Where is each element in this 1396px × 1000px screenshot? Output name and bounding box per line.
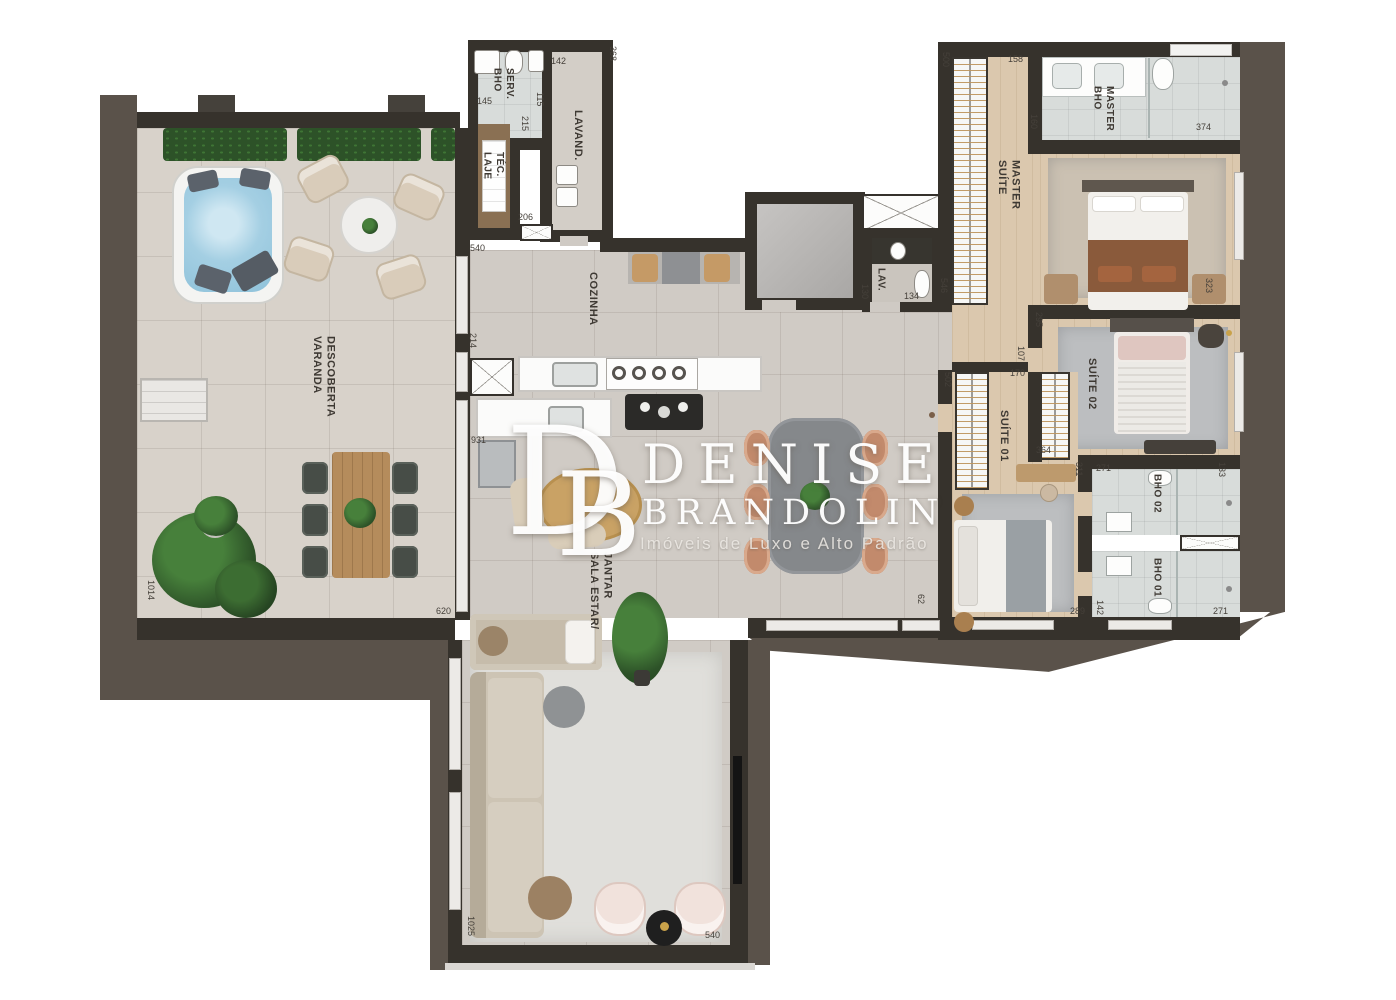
- dim-label: 374: [1196, 122, 1211, 132]
- stove-burner: [672, 366, 686, 380]
- outer-wall-bottom-left: [100, 640, 455, 700]
- outer-wall-sala-right: [748, 640, 770, 965]
- bed-master-headboard: [1082, 180, 1194, 192]
- outdoor-chair: [392, 462, 418, 494]
- bed-02-blanket: [1118, 362, 1186, 432]
- nightstand-01: [954, 496, 974, 516]
- island-item: [640, 402, 650, 412]
- suite-02-door-gap: [1028, 348, 1042, 372]
- parapet-stub: [198, 95, 235, 112]
- sala-plant-pot: [634, 670, 650, 686]
- breakfast-stool: [632, 254, 658, 282]
- shower-glass-01: [1176, 551, 1178, 617]
- bho-01-sink: [1106, 556, 1132, 576]
- dim-label: 130: [860, 284, 870, 299]
- stove-burner: [632, 366, 646, 380]
- bed-master-towel: [1142, 266, 1176, 282]
- room-label-suite-master: SUÍTE MASTER: [994, 160, 1022, 209]
- bho-master-south-wall: [1028, 140, 1240, 154]
- shower-glass-02: [1176, 469, 1178, 535]
- shaft-kitchen: [470, 358, 514, 396]
- closet-01: [955, 372, 989, 490]
- stove-burner: [652, 366, 666, 380]
- dim-label: 142: [1095, 600, 1105, 615]
- bho-02-door-gap: [1078, 492, 1092, 516]
- room-label-bho-serv: BHO SERV.: [490, 68, 515, 99]
- sofa-cushion: [488, 678, 542, 798]
- bed-01-pillow: [958, 526, 978, 606]
- breakfast-stool: [704, 254, 730, 282]
- shower-head-01: [1226, 586, 1232, 592]
- room-label-cozinha: COZINHA: [585, 272, 599, 326]
- closet-master: [952, 57, 988, 305]
- dim-label: 107: [1016, 346, 1026, 361]
- dim-label: 115: [535, 92, 545, 106]
- suite-01-door-knob: [929, 412, 935, 418]
- bed-master-pillow: [1140, 196, 1184, 212]
- dim-label: 1025: [466, 916, 476, 936]
- kitchen-top-wall: [600, 238, 748, 252]
- shelf-rack: [140, 378, 208, 422]
- bho-01-toilet: [1148, 598, 1172, 614]
- lav-door-gap: [870, 302, 900, 312]
- bho-master-niche: [1170, 44, 1232, 56]
- service-sink: [528, 50, 544, 72]
- shaft-laundry: [520, 224, 553, 241]
- room-label-suite-01: SUÍTE 01: [996, 410, 1010, 462]
- dim-label: 206: [518, 212, 533, 222]
- washer-icon: [556, 165, 578, 185]
- planter-hedge: [297, 128, 421, 161]
- dim-label: 214: [468, 333, 478, 348]
- bho-master-toilet: [1152, 58, 1174, 90]
- planter-hedge: [431, 128, 455, 161]
- outer-wall-left: [100, 95, 137, 700]
- bho-master-west-wall: [1028, 57, 1042, 154]
- outer-wall-right: [1240, 42, 1285, 612]
- daybed-cushion: [478, 626, 508, 656]
- dim-label: 311: [1074, 462, 1084, 476]
- outdoor-chair: [302, 546, 328, 578]
- room-label-bho-01: BHO 01: [1150, 558, 1163, 597]
- armchair: [594, 882, 646, 936]
- watermark-monogram-b: B: [556, 458, 641, 574]
- dim-label: 160: [1029, 114, 1039, 129]
- stove-burner: [612, 366, 626, 380]
- window-sala-2: [449, 792, 461, 910]
- shaft-bathrooms: [1180, 535, 1240, 551]
- pouf-gray: [543, 686, 585, 728]
- room-label-bho-master: BHO MASTER: [1090, 86, 1115, 131]
- outdoor-chair: [302, 504, 328, 536]
- nightstand-01: [954, 612, 974, 632]
- shower-head-master: [1222, 80, 1228, 86]
- planter-hedge: [163, 128, 287, 161]
- outdoor-chair: [392, 504, 418, 536]
- desk-chair-01: [1040, 484, 1058, 502]
- dim-label: 931: [471, 435, 486, 445]
- side-table-decor: [660, 922, 669, 931]
- window-suite-01-south: [972, 620, 1054, 630]
- sofa-back: [470, 672, 486, 938]
- floor-plan: VARANDA DESCOBERTA LAJE TÉC. BHO SERV. L…: [0, 0, 1396, 1000]
- shower-head-02: [1226, 500, 1232, 506]
- dim-label: 502: [943, 372, 953, 387]
- varanda-top-wall: [137, 112, 460, 128]
- breakfast-pad: [662, 252, 700, 284]
- outer-wall-sala-left: [430, 640, 450, 970]
- island-item: [658, 406, 670, 418]
- dim-label: 271: [1213, 606, 1228, 616]
- window-suite-master-east: [1234, 172, 1244, 260]
- bed-02-headboard: [1110, 318, 1194, 332]
- sala-south-wall: [448, 945, 748, 963]
- room-label-bho-02: BHO 02: [1150, 474, 1163, 513]
- window-facade-2: [456, 352, 468, 392]
- varanda-bottom-wall: [137, 618, 455, 640]
- dim-label: 540: [470, 243, 485, 253]
- sala-south-sill: [445, 963, 755, 970]
- outdoor-table-plant: [344, 498, 376, 528]
- bho-02-sink: [1106, 512, 1132, 532]
- suite-01-door-gap: [938, 404, 952, 432]
- wing-west-wall-a: [938, 57, 952, 312]
- outdoor-chair: [302, 462, 328, 494]
- window-bho-01-south: [1108, 620, 1172, 630]
- bed-master-towel: [1098, 266, 1132, 282]
- window-suite-02-east: [1234, 352, 1244, 432]
- dim-label: 271: [1096, 463, 1111, 473]
- dim-label: 368: [608, 46, 618, 61]
- watermark-name-line1: DENISE: [642, 438, 948, 492]
- bed-01-blanket: [1006, 520, 1046, 612]
- dim-label: 289: [1070, 606, 1085, 616]
- bho-01-door-gap: [1078, 572, 1092, 596]
- dim-label: 158: [1008, 54, 1023, 64]
- dim-label: 546: [939, 278, 949, 293]
- dim-label: 323: [1204, 278, 1214, 293]
- room-label-suite-02: SUÍTE 02: [1084, 358, 1098, 410]
- room-label-lavand: LAVAND.: [570, 110, 584, 161]
- lamp-02: [1226, 330, 1232, 336]
- dim-label: 620: [436, 606, 451, 616]
- tv-panel: [733, 756, 742, 884]
- island-item: [678, 402, 688, 412]
- room-label-lav: LAV.: [874, 268, 887, 291]
- dim-label: 142: [551, 56, 566, 66]
- hall-floor: [757, 204, 853, 298]
- window-facade-3: [456, 400, 468, 612]
- window-facade-1: [456, 256, 468, 334]
- window-living-south-1: [766, 620, 898, 631]
- dim-label: 295: [1034, 312, 1044, 327]
- lav-sink: [890, 242, 906, 260]
- dim-label: 133: [1217, 462, 1227, 477]
- room-label-varanda: VARANDA DESCOBERTA: [309, 336, 337, 417]
- hall-door-gap: [762, 300, 796, 312]
- dim-label: 1014: [146, 580, 156, 600]
- dim-label: 215: [520, 116, 530, 131]
- watermark-tagline: Imóveis de Luxo e Alto Padrão: [640, 534, 929, 554]
- window-living-south-2: [902, 620, 940, 631]
- shower-glass-master: [1148, 58, 1150, 138]
- parapet-stub: [388, 95, 425, 112]
- dryer-icon: [556, 187, 578, 207]
- bench-02: [1144, 440, 1216, 454]
- dim-label: 170: [1010, 368, 1025, 378]
- corridor-opening-floor: [938, 312, 952, 370]
- shaft-elevator: [862, 194, 940, 232]
- dim-label: 134: [904, 291, 919, 301]
- corner-plant-palm: [215, 560, 277, 618]
- lavand-door-gap: [560, 236, 588, 246]
- window-sala-1: [449, 658, 461, 770]
- dim-label: 540: [705, 930, 720, 940]
- dim-label: 364: [1036, 445, 1051, 455]
- outdoor-chair: [392, 546, 418, 578]
- room-label-laje-tec: LAJE TÉC.: [480, 152, 505, 180]
- pot-plant: [194, 496, 238, 536]
- chair-02: [1198, 324, 1224, 348]
- lounge-table-plant: [362, 218, 378, 234]
- dim-label: 62: [916, 594, 926, 604]
- kitchen-sink: [552, 362, 598, 387]
- dim-label: 145: [477, 96, 492, 106]
- bed-02-pillow: [1118, 336, 1186, 360]
- bho-master-sink: [1052, 63, 1082, 89]
- desk-01: [1016, 464, 1076, 482]
- pouf-brown: [528, 876, 572, 920]
- dim-label: 500: [941, 52, 951, 67]
- nightstand: [1044, 274, 1078, 304]
- bed-master-pillow: [1092, 196, 1136, 212]
- watermark-name-line2: BRANDOLIN: [642, 496, 946, 531]
